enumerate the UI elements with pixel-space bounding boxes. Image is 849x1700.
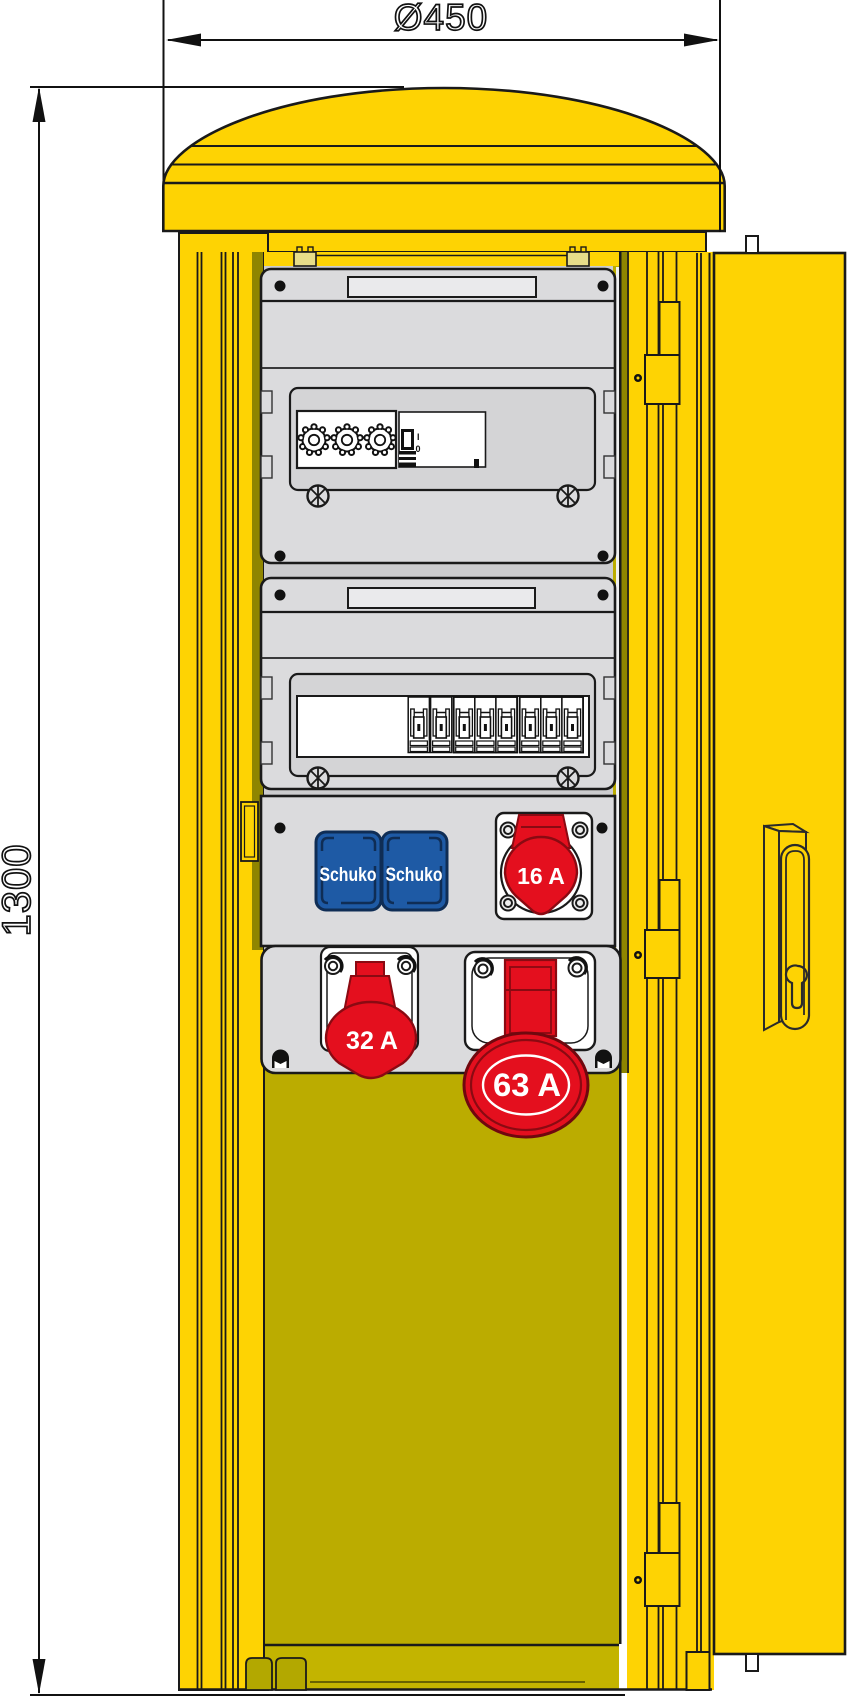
svg-text:I: I [417, 432, 420, 442]
svg-text:0: 0 [416, 444, 421, 454]
svg-text:63 A: 63 A [493, 1067, 561, 1103]
svg-text:Schuko: Schuko [386, 865, 443, 886]
svg-text:16 A: 16 A [517, 863, 565, 889]
svg-text:Ø450: Ø450 [394, 0, 489, 38]
svg-text:1300: 1300 [0, 844, 39, 937]
svg-text:Schuko: Schuko [320, 865, 377, 886]
svg-text:32 A: 32 A [346, 1027, 398, 1055]
